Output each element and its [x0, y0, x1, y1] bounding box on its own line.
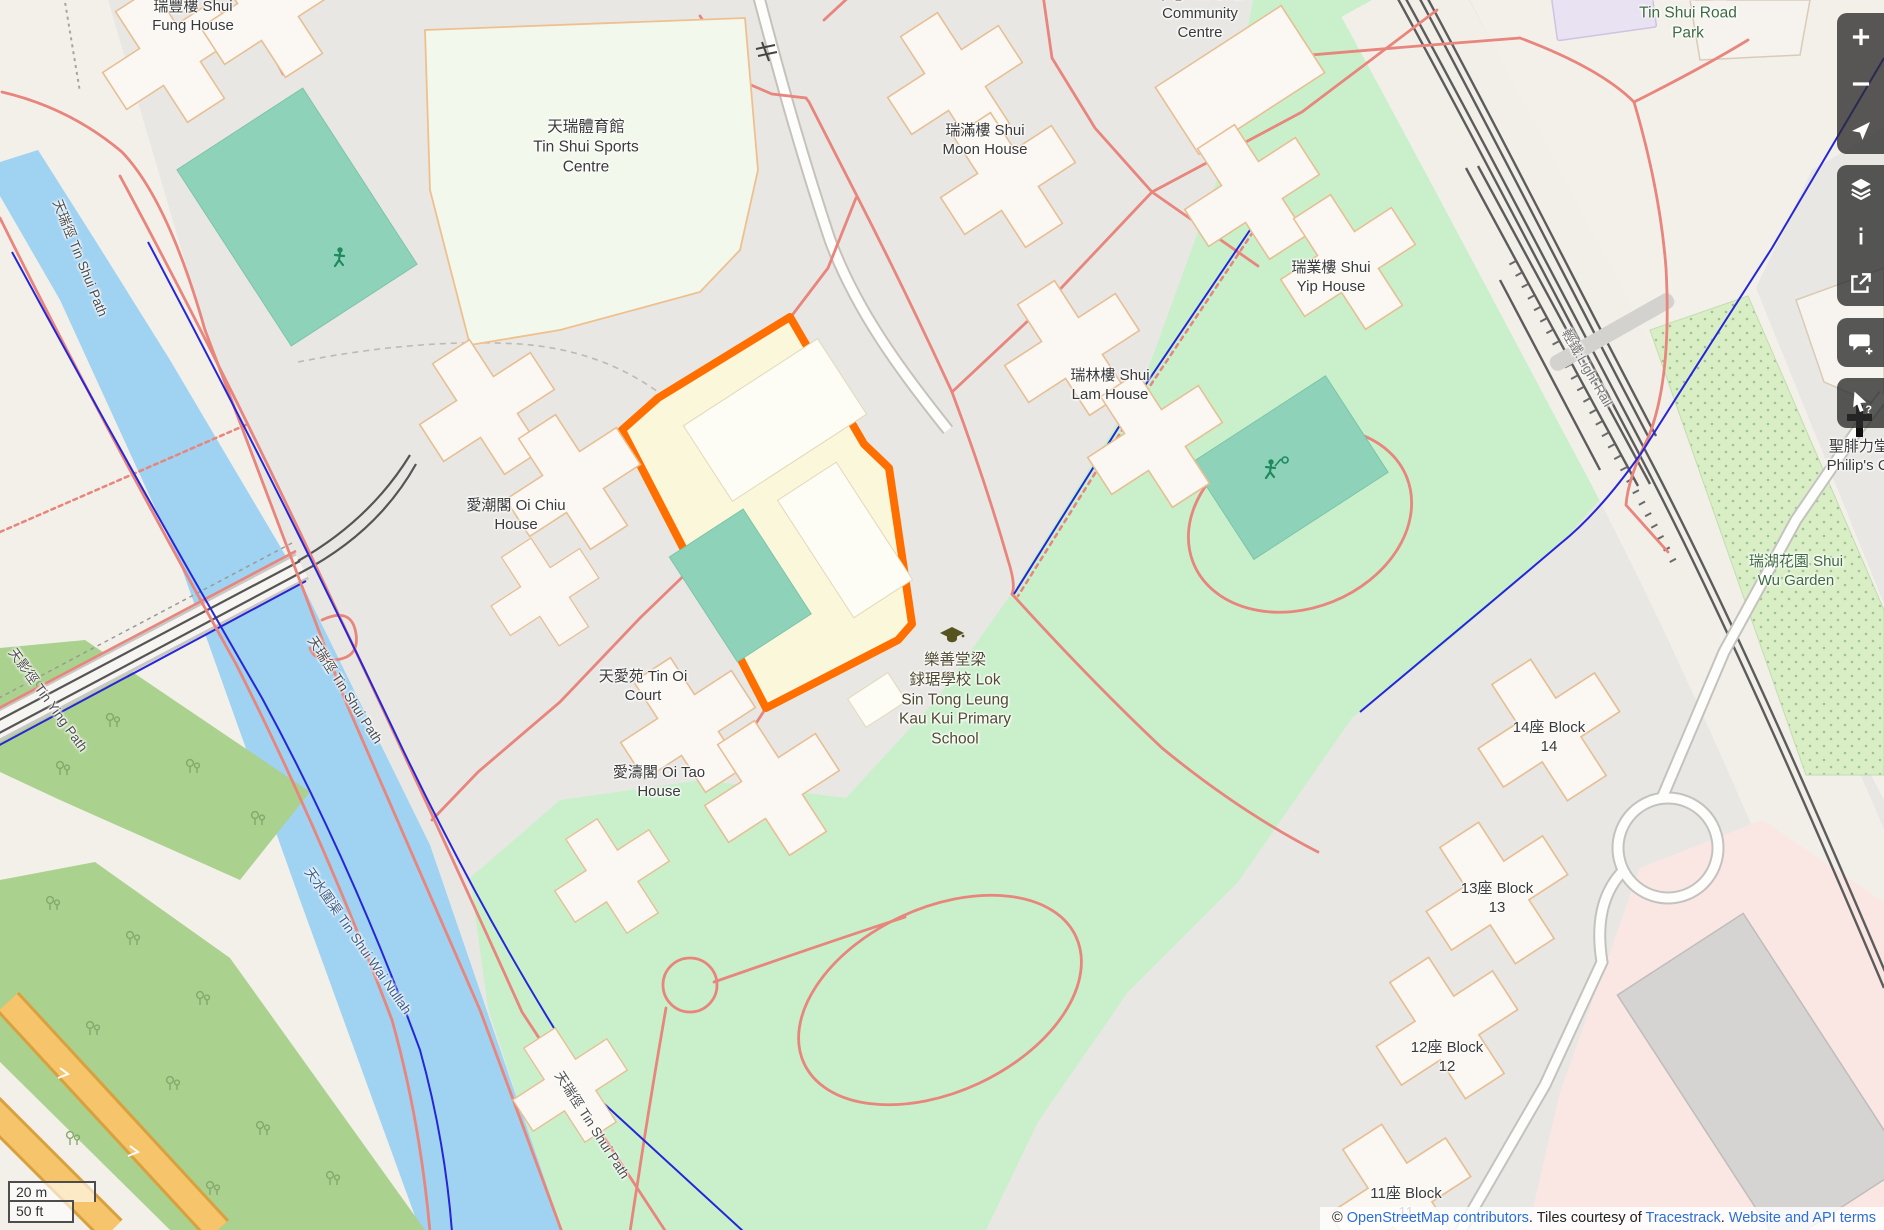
scale-bar: 20 m 50 ft — [8, 1181, 96, 1223]
locate-icon — [1849, 119, 1873, 143]
zoom-in-icon — [1848, 24, 1874, 50]
zoom-out-icon — [1848, 71, 1874, 97]
svg-text:?: ? — [1865, 404, 1872, 416]
map-artwork — [0, 0, 1884, 1230]
zoom-out-button[interactable] — [1837, 60, 1884, 107]
terms-link[interactable]: Website and API terms — [1729, 1210, 1876, 1226]
query-features-button[interactable]: ? — [1837, 378, 1884, 428]
add-note-button[interactable] — [1837, 318, 1884, 367]
map-canvas[interactable] — [0, 0, 1884, 1230]
info-button[interactable] — [1837, 212, 1884, 259]
add-note-icon — [1848, 330, 1874, 356]
query-features-icon: ? — [1848, 390, 1874, 416]
map-screen: 瑞豐樓 ShuiFung House天瑞體育館Tin Shui SportsCe… — [0, 0, 1884, 1230]
layers-button[interactable] — [1837, 165, 1884, 212]
attribution-prefix: © — [1332, 1210, 1347, 1226]
attribution-mid1: . Tiles courtesy of — [1529, 1210, 1646, 1226]
osm-contributors-link[interactable]: OpenStreetMap contributors — [1347, 1210, 1529, 1226]
top-building — [1690, 0, 1810, 60]
scale-metric: 20 m — [8, 1181, 96, 1202]
tracestrack-link[interactable]: Tracestrack — [1646, 1210, 1721, 1226]
info-icon — [1849, 224, 1873, 248]
locate-button[interactable] — [1837, 107, 1884, 154]
scale-imperial: 50 ft — [8, 1200, 74, 1223]
share-icon — [1848, 270, 1874, 296]
attribution-bar: © OpenStreetMap contributors. Tiles cour… — [1320, 1207, 1884, 1230]
share-button[interactable] — [1837, 259, 1884, 306]
zoom-in-button[interactable] — [1837, 13, 1884, 60]
attribution-mid2: . — [1721, 1210, 1729, 1226]
layers-icon — [1848, 176, 1874, 202]
